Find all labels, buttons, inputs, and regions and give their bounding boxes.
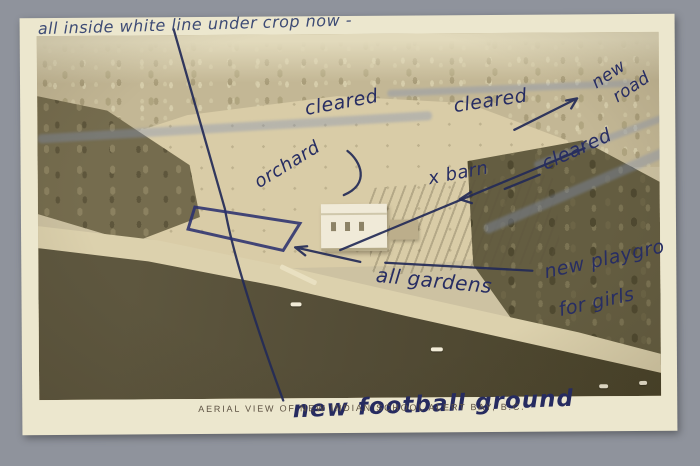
orchard-bracket (343, 151, 360, 195)
ink-line-crop-to-football (174, 28, 284, 401)
ink-marks-overlay (20, 14, 678, 436)
cleared-right-tick (505, 175, 540, 189)
gardens-arrow (295, 246, 360, 262)
screenshot-stage: all inside white line under crop now - c… (0, 0, 700, 466)
football-ground-outline (188, 206, 300, 251)
postcard: all inside white line under crop now - c… (20, 14, 678, 436)
